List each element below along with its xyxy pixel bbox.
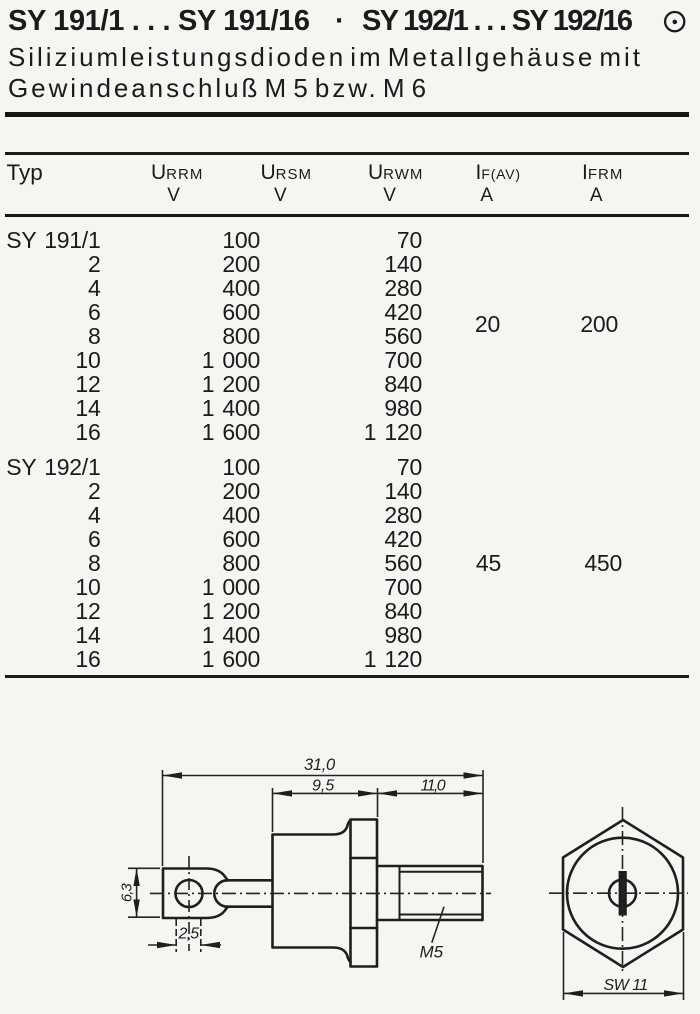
svg-text:2,5: 2,5 — [178, 926, 200, 943]
svg-text:9,5: 9,5 — [312, 778, 334, 795]
svg-text:6,3: 6,3 — [119, 883, 136, 903]
svg-text:11,0: 11,0 — [421, 778, 446, 795]
svg-text:31,0: 31,0 — [304, 756, 336, 774]
svg-text:SW 11: SW 11 — [604, 977, 648, 994]
svg-text:M5: M5 — [420, 943, 444, 962]
